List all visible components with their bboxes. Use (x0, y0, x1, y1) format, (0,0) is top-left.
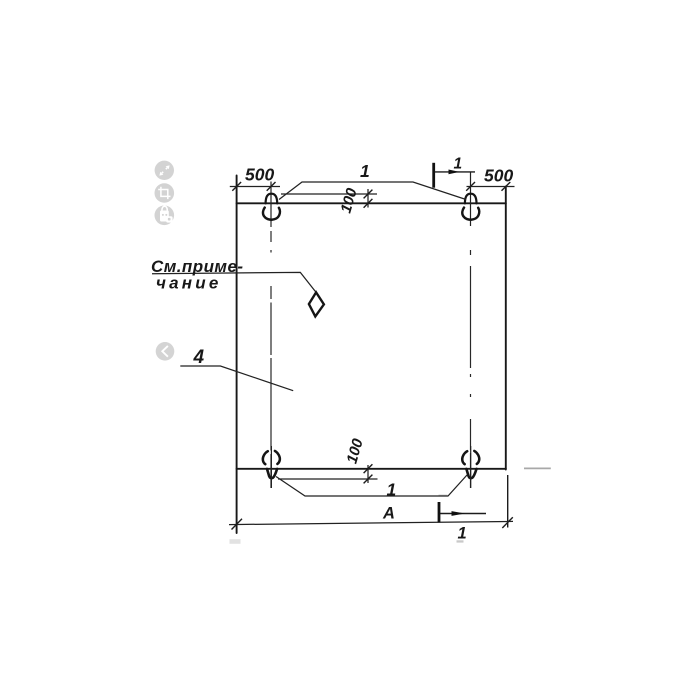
svg-text:4: 4 (193, 347, 205, 368)
svg-text:500: 500 (484, 166, 513, 186)
svg-text:1: 1 (360, 161, 370, 181)
svg-text:А: А (382, 505, 395, 523)
svg-text:1: 1 (454, 156, 463, 173)
svg-text:500: 500 (245, 165, 274, 185)
svg-text:1: 1 (458, 525, 467, 543)
svg-text:чание: чание (156, 274, 221, 293)
svg-text:1: 1 (387, 480, 397, 500)
